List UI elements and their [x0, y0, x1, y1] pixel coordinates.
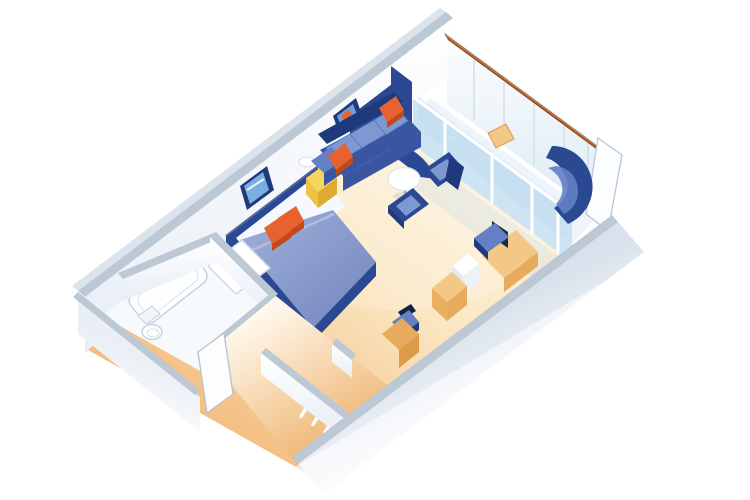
- floorplan-stage: [0, 0, 750, 500]
- stateroom-3d-floorplan: [0, 0, 750, 500]
- round-white-table: [388, 168, 420, 191]
